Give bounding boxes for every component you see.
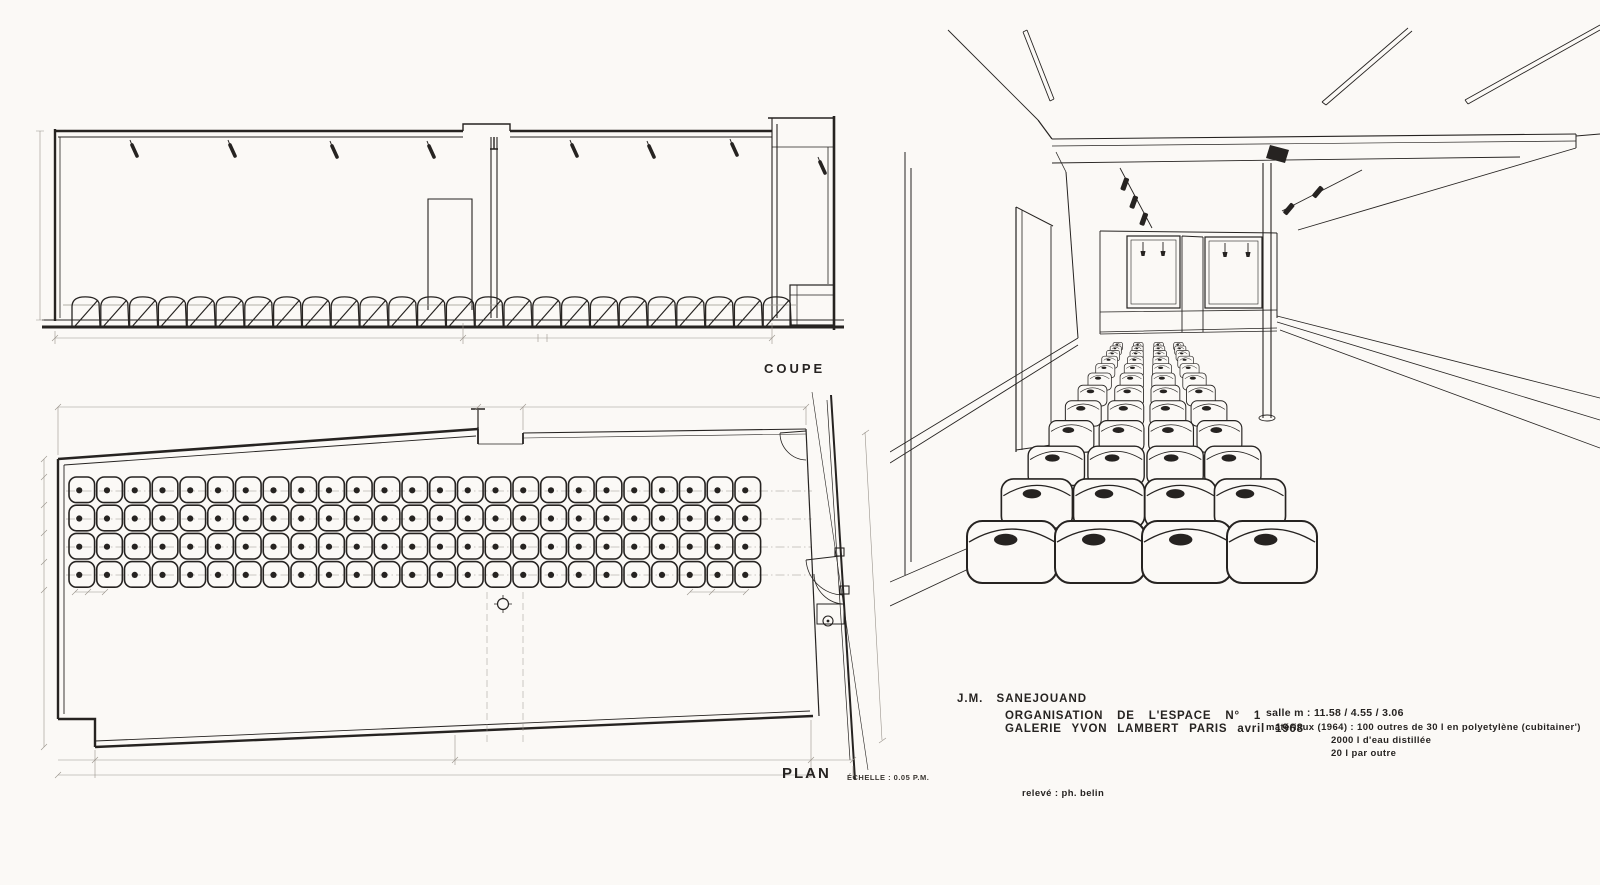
window-pendant-lights bbox=[1141, 242, 1251, 257]
caption-title-line2: GALERIE YVON LAMBERT PARIS avril 1968 bbox=[1005, 723, 1304, 735]
track-spotlights bbox=[1120, 177, 1324, 226]
caption-room-dimensions: salle m : 11.58 / 4.55 / 3.06 bbox=[1266, 707, 1404, 719]
coupe-container-row bbox=[72, 297, 791, 326]
coupe-spotlights bbox=[130, 139, 825, 173]
plan-label: PLAN bbox=[782, 765, 831, 782]
coupe-and-plan-drawing bbox=[0, 0, 890, 885]
caption-title-line1: ORGANISATION DE L'ESPACE N° 1 bbox=[1005, 710, 1261, 722]
perspective-room bbox=[890, 25, 1600, 606]
plan-scale-note: ÉCHELLE : 0.05 P.M. bbox=[847, 773, 929, 782]
caption-credit: relevé : ph. belin bbox=[1022, 788, 1104, 799]
caption-artist: J.M. SANEJOUAND bbox=[957, 693, 1087, 705]
perspective-drawing bbox=[890, 0, 1600, 885]
coupe-drawing bbox=[36, 116, 844, 344]
plan-dimensions bbox=[41, 404, 886, 778]
caption-materials-line3: 20 l par outre bbox=[1331, 748, 1396, 759]
perspective-container-field bbox=[967, 342, 1317, 583]
caption-materials-line2: 2000 l d'eau distillée bbox=[1331, 735, 1431, 746]
coupe-dimensions bbox=[36, 131, 775, 344]
plan-container-grid bbox=[69, 477, 761, 587]
caption-materials-line1: matériaux (1964) : 100 outres de 30 l en… bbox=[1266, 722, 1581, 733]
coupe-label: COUPE bbox=[764, 361, 825, 376]
plan-drawing bbox=[41, 392, 886, 780]
plan-centerlines bbox=[487, 592, 523, 742]
scanned-artwork-page: { "colors": { "paper": "#fbf9f6", "ink":… bbox=[0, 0, 1600, 885]
